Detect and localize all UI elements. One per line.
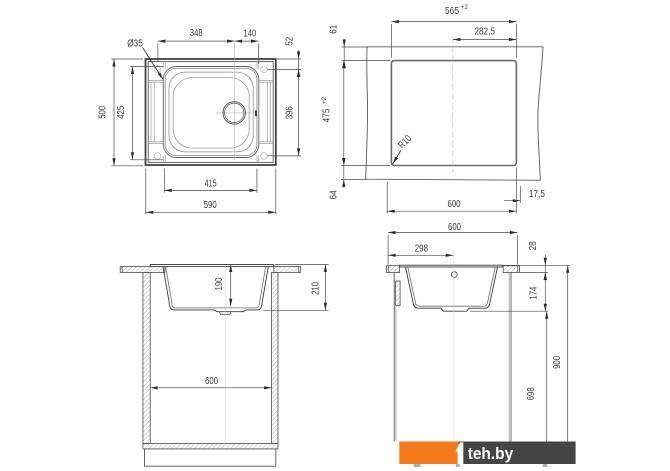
svg-text:698: 698	[526, 387, 537, 400]
svg-text:475: 475	[322, 108, 333, 122]
svg-text:210: 210	[311, 282, 322, 295]
svg-text:282,5: 282,5	[474, 27, 495, 38]
svg-text:+2: +2	[321, 97, 328, 104]
svg-text:415: 415	[205, 178, 217, 189]
svg-text:61: 61	[328, 24, 339, 33]
svg-text:190: 190	[214, 277, 225, 290]
svg-text:600: 600	[448, 199, 461, 210]
svg-text:600: 600	[205, 376, 218, 387]
svg-text:600: 600	[448, 222, 461, 233]
svg-text:500: 500	[98, 105, 109, 118]
svg-text:174: 174	[529, 286, 540, 299]
svg-text:298: 298	[415, 244, 429, 255]
svg-text:teh.by: teh.by	[468, 445, 514, 463]
svg-text:Ø35: Ø35	[127, 39, 143, 50]
svg-text:28: 28	[528, 241, 539, 250]
svg-text:140: 140	[243, 28, 256, 39]
svg-text:900: 900	[552, 356, 563, 369]
svg-text:565: 565	[445, 6, 459, 17]
svg-text:+2: +2	[461, 4, 468, 11]
svg-text:425: 425	[116, 105, 127, 118]
svg-text:396: 396	[284, 106, 295, 119]
svg-text:348: 348	[190, 28, 203, 39]
svg-text:64: 64	[328, 190, 339, 199]
svg-text:52: 52	[284, 36, 295, 45]
svg-text:17,5: 17,5	[529, 189, 545, 200]
svg-text:590: 590	[204, 200, 217, 211]
